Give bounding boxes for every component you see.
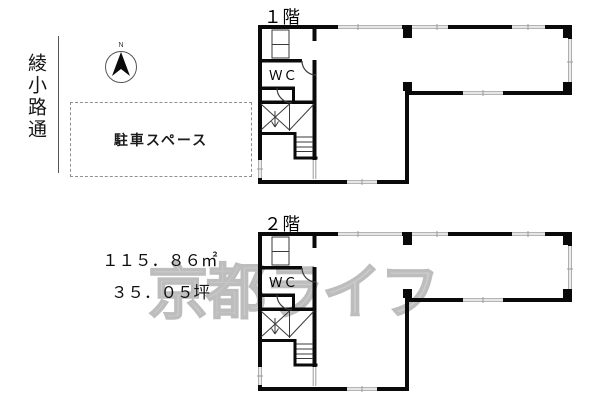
wc-label-1f: ＷＣ bbox=[269, 64, 298, 84]
pillar bbox=[403, 289, 412, 298]
wall bbox=[258, 59, 302, 63]
wall bbox=[258, 180, 409, 184]
stair-mark bbox=[272, 122, 276, 128]
stair-mark bbox=[290, 104, 315, 130]
pillar bbox=[403, 236, 412, 245]
wall bbox=[313, 232, 317, 248]
parking-label: 駐車スペース bbox=[114, 130, 208, 150]
pillar bbox=[563, 289, 572, 298]
compass-n-label: N bbox=[118, 42, 123, 49]
wall bbox=[313, 25, 317, 41]
pillar bbox=[563, 82, 572, 91]
pillar bbox=[563, 236, 572, 245]
stair-mark bbox=[290, 311, 315, 337]
wall bbox=[405, 298, 409, 391]
north-arrow-icon bbox=[112, 52, 130, 76]
wall bbox=[294, 157, 318, 160]
wall bbox=[294, 339, 297, 367]
floor-plan-2f bbox=[254, 228, 576, 396]
plan-root bbox=[257, 231, 573, 392]
pillar bbox=[403, 82, 412, 91]
wall bbox=[258, 132, 295, 135]
plan-root bbox=[257, 24, 573, 185]
stair-mark bbox=[275, 329, 279, 335]
wall bbox=[258, 387, 409, 391]
pillar bbox=[563, 29, 572, 38]
stair-mark bbox=[275, 122, 279, 128]
area-square-meters: １１５．８６㎡ bbox=[102, 247, 218, 271]
street-name: 綾小路通 bbox=[22, 53, 49, 141]
wall bbox=[258, 266, 302, 270]
stair-mark bbox=[272, 329, 276, 335]
wall bbox=[294, 364, 318, 367]
area-tsubo: ３５．０５坪 bbox=[111, 279, 210, 303]
wc-label-2f: ＷＣ bbox=[269, 271, 298, 291]
parking-area: 駐車スペース bbox=[70, 102, 252, 177]
street-boundary-line bbox=[58, 36, 59, 173]
wall bbox=[405, 91, 409, 184]
wall bbox=[258, 339, 295, 342]
floor-plan-1f bbox=[254, 21, 576, 189]
pillar bbox=[403, 29, 412, 38]
north-compass: N bbox=[98, 38, 144, 86]
wall bbox=[294, 132, 297, 160]
